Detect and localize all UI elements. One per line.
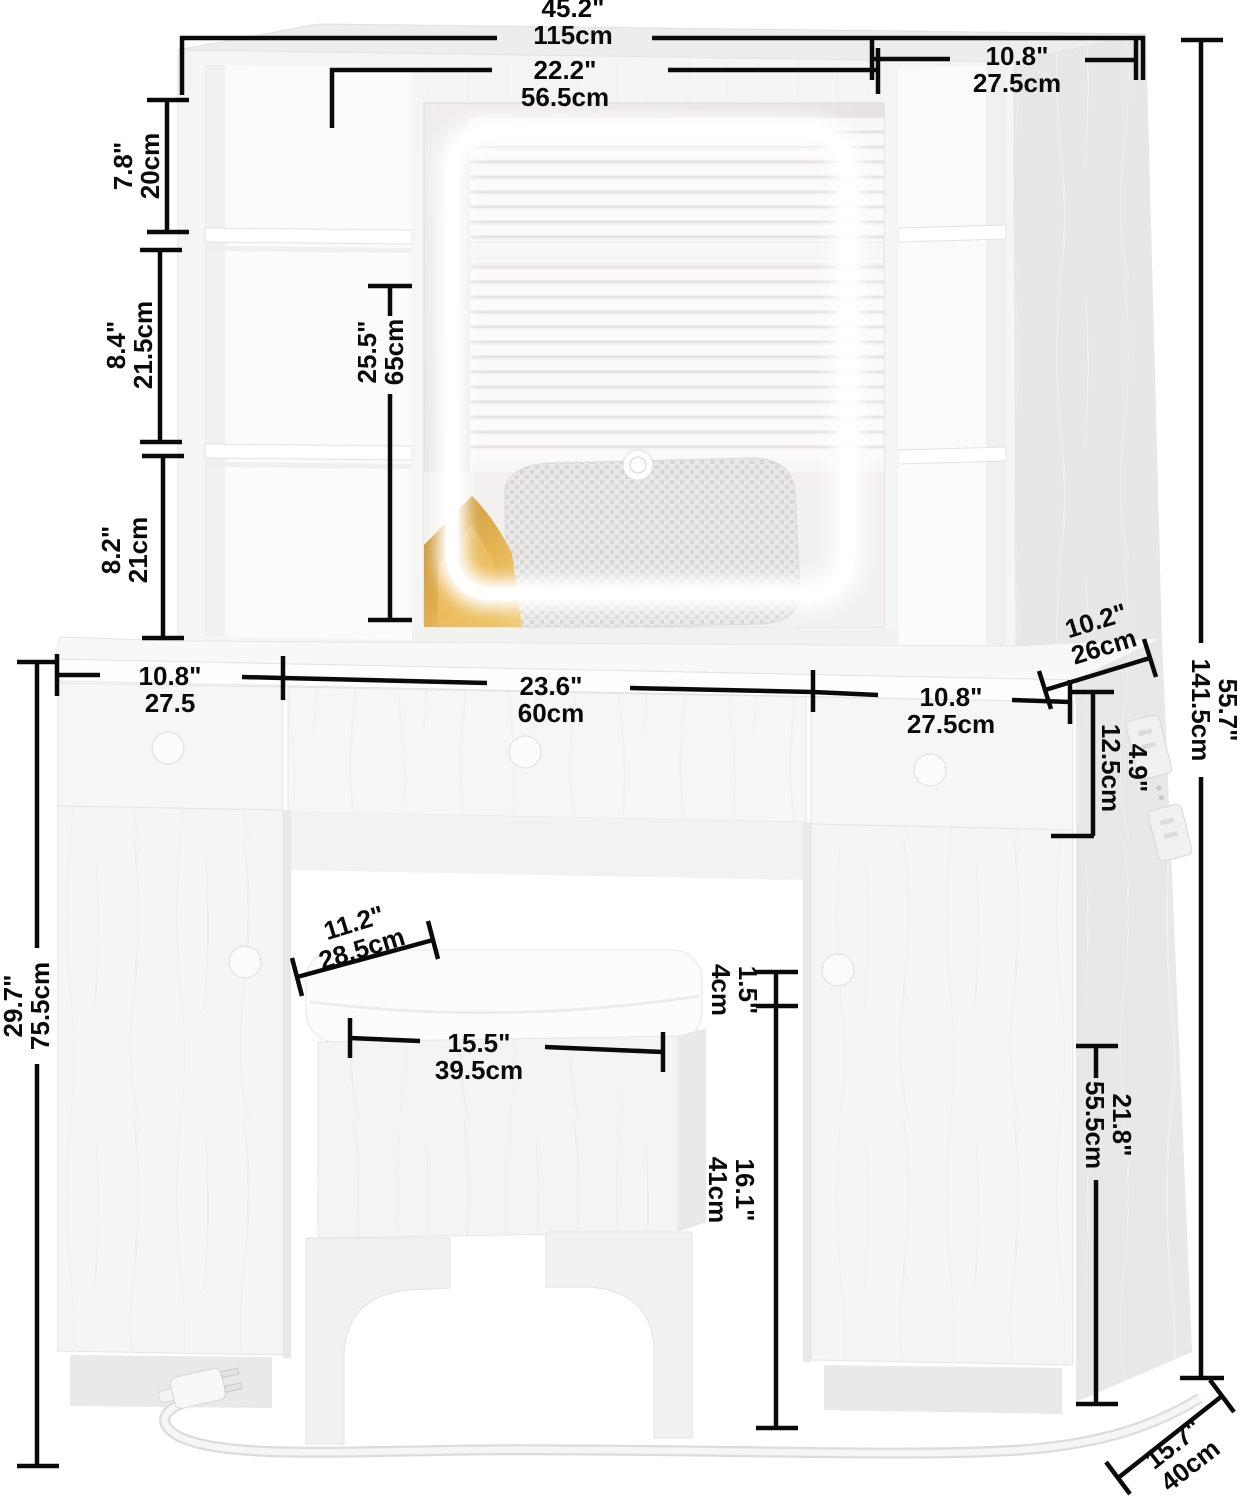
- stool-right-leg: [546, 1232, 692, 1438]
- dim-inches: 23.6": [518, 673, 585, 700]
- dim-mirror-height-label: 25.5" 65cm: [354, 319, 408, 386]
- dim-cm: 55.5cm: [1081, 1081, 1108, 1169]
- dim-overall-width-label: 45.2" 115cm: [533, 0, 613, 49]
- dim-cm: 4cm: [707, 964, 734, 1016]
- hutch-side-grain: [1014, 34, 1162, 650]
- left-tower-shadow: [205, 65, 225, 636]
- dim-inches: 4.9": [1124, 724, 1151, 812]
- stool: [306, 950, 706, 1444]
- dim-cm: 60cm: [518, 700, 585, 727]
- dim-cm: 56.5cm: [521, 84, 609, 111]
- left-shelf-2: [205, 444, 412, 460]
- dim-left-shelf-top-label: 7.8" 20cm: [110, 133, 164, 200]
- knee-space-rail: [291, 812, 803, 880]
- dim-cm: 21.5cm: [130, 301, 157, 389]
- dim-drawer-height-label: 4.9" 12.5cm: [1097, 724, 1151, 812]
- dim-cm: 12.5cm: [1097, 724, 1124, 812]
- dim-inches: 29.7": [0, 962, 27, 1050]
- dim-cm: 20cm: [137, 133, 164, 200]
- dim-inches: 25.5": [354, 319, 381, 386]
- mirror-touch-button: [623, 450, 653, 480]
- dim-left-drawer-width-label: 10.8" 27.5: [139, 663, 202, 717]
- dim-right-drawer-width-label: 10.8" 27.5cm: [907, 684, 995, 738]
- dim-cm: 41cm: [704, 1157, 731, 1224]
- dim-cushion-height-label: 1.5" 4cm: [707, 964, 761, 1016]
- hutch: [178, 24, 1162, 650]
- right-pedestal-inner-wall: [803, 822, 811, 1362]
- dim-inches: 15.5": [435, 1030, 523, 1057]
- dim-mirror-width-label: 22.2" 56.5cm: [521, 57, 609, 111]
- dim-stool-width-label: 15.5" 39.5cm: [435, 1030, 523, 1084]
- stool-left-leg: [306, 1238, 450, 1444]
- dim-inches: 10.8": [139, 663, 202, 690]
- dim-inches: 8.4": [103, 301, 130, 389]
- dim-desk-height-label: 29.7" 75.5cm: [0, 962, 54, 1050]
- left-shelf-1: [205, 228, 412, 244]
- dim-total-height-label: 55.7" 141.5cm: [1187, 659, 1240, 762]
- left-drawer-knob: [152, 732, 184, 764]
- dim-cm: 27.5cm: [907, 711, 995, 738]
- dim-cm: 75.5cm: [27, 962, 54, 1050]
- dim-middle-drawer-width-label: 23.6" 60cm: [518, 673, 585, 727]
- dim-inches: 10.8": [973, 43, 1061, 70]
- right-shelf-2: [898, 447, 1006, 464]
- dim-stool-leg-height-label: 16.1" 41cm: [704, 1157, 758, 1224]
- vanity-illustration: [0, 0, 1240, 1500]
- dim-inches: 22.2": [521, 57, 609, 84]
- dim-inches: 8.2": [98, 517, 125, 584]
- dim-cm: 65cm: [381, 319, 408, 386]
- dim-inches: 7.8": [110, 133, 137, 200]
- dim-cm: 39.5cm: [435, 1057, 523, 1084]
- right-drawer-knob: [914, 754, 946, 786]
- dim-cm: 141.5cm: [1187, 659, 1214, 762]
- stool-box-side: [678, 1028, 706, 1232]
- dim-cabinet-height-label: 21.8" 55.5cm: [1081, 1081, 1135, 1169]
- dim-inches: 45.2": [533, 0, 613, 22]
- right-door-knob: [822, 954, 854, 986]
- dim-inches: 1.5": [734, 964, 761, 1016]
- mirror-reflection: [424, 118, 884, 630]
- dim-inches: 21.8": [1108, 1081, 1135, 1169]
- right-tower-shadow: [986, 66, 1006, 645]
- dim-cm: 27.5cm: [973, 70, 1061, 97]
- dim-cm: 21cm: [125, 517, 152, 584]
- dim-inches: 16.1": [731, 1157, 758, 1224]
- left-pedestal-inner-wall: [283, 810, 291, 1358]
- dim-line-desk-height: [17, 662, 59, 1466]
- dim-left-shelf-bottom-label: 8.2" 21cm: [98, 517, 152, 584]
- dim-left-shelf-mid-label: 8.4" 21.5cm: [103, 301, 157, 389]
- dim-cm: 27.5: [139, 690, 202, 717]
- left-door-knob: [229, 946, 261, 978]
- middle-drawer-knob: [509, 736, 541, 768]
- product-dimension-diagram: 45.2" 115cm 22.2" 56.5cm 10.8" 27.5cm 7.…: [0, 0, 1240, 1500]
- right-shelf-1: [898, 225, 1006, 242]
- dim-line-stool-leg-height: [756, 1006, 798, 1428]
- dim-cm: 115cm: [533, 22, 613, 49]
- dim-inches: 10.8": [907, 684, 995, 711]
- right-plinth: [824, 1365, 1062, 1414]
- dim-inches: 55.7": [1214, 659, 1240, 762]
- shutter-reflection: [470, 118, 884, 470]
- dim-right-shelf-width-label: 10.8" 27.5cm: [973, 43, 1061, 97]
